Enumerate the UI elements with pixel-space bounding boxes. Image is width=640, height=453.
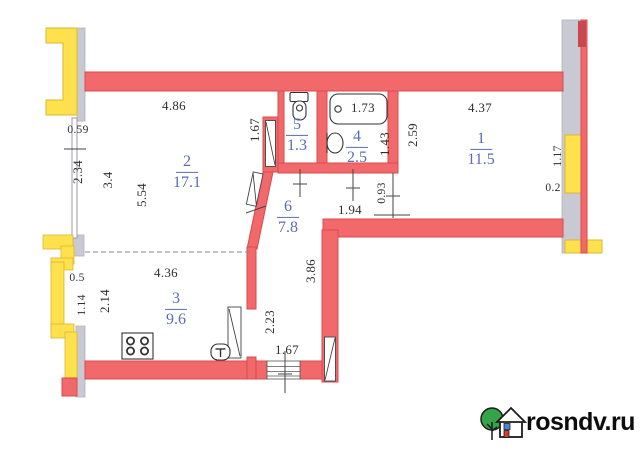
room-number: 5 <box>286 116 308 136</box>
dim-right-wall-thickness: 0.2 <box>545 182 560 194</box>
wall-kitchen-right-upper <box>247 247 256 309</box>
room-area: 1.3 <box>286 136 308 155</box>
kitchen-sink-icon <box>211 344 230 360</box>
dim-kitchen-width: 4.36 <box>154 265 178 281</box>
floor-plan-canvas <box>0 0 640 453</box>
toilet-door <box>266 121 276 167</box>
room-label-3: 3 9.6 <box>165 290 187 328</box>
dim-kitchen-left-offset: 0.5 <box>69 272 84 284</box>
wall-kitchen-right-lower <box>247 357 256 379</box>
dim-room2-height-b: 5.54 <box>134 183 150 207</box>
wall-kitchen-bottom <box>85 361 267 379</box>
dim-room2-height-a: 3.4 <box>100 171 116 188</box>
dim-left-upper-height: 2.34 <box>70 160 86 184</box>
top-left-balcony-wall <box>77 28 85 121</box>
room-label-1: 1 11.5 <box>467 130 494 168</box>
dim-top-right-width: 4.37 <box>468 100 492 116</box>
dim-room1-left-height: 2.59 <box>405 123 421 147</box>
room-area: 9.6 <box>165 310 187 329</box>
wall-right-top-dash <box>578 21 586 47</box>
room-label-4: 4 2.5 <box>346 128 368 166</box>
dim-hall-width: 1.94 <box>338 202 362 218</box>
room-label-2: 2 17.1 <box>173 153 201 191</box>
entry-door <box>325 337 336 381</box>
room-number: 6 <box>277 198 299 218</box>
dim-kitchen-left-height: 2.14 <box>97 289 113 313</box>
dim-kitchen-window-a: 1.14 <box>76 294 88 315</box>
dim-bathtub-length: 1.73 <box>351 100 375 116</box>
wall-bath-bottom <box>278 163 398 173</box>
dim-bath-height: 1.43 <box>377 132 393 156</box>
watermark-site: rosndv.ru <box>526 408 635 437</box>
dim-top-left-width: 4.86 <box>162 98 186 114</box>
wall-top <box>85 72 563 91</box>
top-left-balcony-window <box>46 28 77 115</box>
room-label-5: 5 1.3 <box>286 116 308 154</box>
dim-left-upper-offset: 0.59 <box>67 124 88 136</box>
wall-toilet-bath <box>317 91 327 173</box>
wall-entry-right <box>300 361 322 379</box>
wall-toilet-left <box>278 91 284 173</box>
room-label-6: 6 7.8 <box>277 198 299 236</box>
room-number: 1 <box>470 130 492 150</box>
dim-kitchen-door-height: 2.23 <box>262 310 278 334</box>
dim-hall-opening: 0.93 <box>376 182 388 203</box>
right-window <box>565 135 582 193</box>
dim-entry-width: 1.67 <box>275 342 299 358</box>
room-area: 17.1 <box>173 173 201 192</box>
bath-sink-icon <box>327 133 343 153</box>
wall-right-edge <box>581 20 587 253</box>
room-number: 2 <box>176 153 198 173</box>
floor-plan: 4.86 4.37 0.59 2.34 3.4 5.54 1.67 1.73 1… <box>0 0 640 453</box>
room-area: 7.8 <box>277 218 299 237</box>
room-area: 2.5 <box>346 148 368 167</box>
wall-room1-bottom <box>323 219 563 237</box>
entry-threshold <box>267 361 300 379</box>
dim-hall-passage-height: 1.67 <box>247 118 263 142</box>
wall-left-bottom-cap <box>62 378 77 396</box>
dim-hall-height: 3.86 <box>303 259 319 283</box>
stove-icon <box>122 333 153 359</box>
dim-right-window-height: 1.17 <box>552 145 564 166</box>
watermark: rosndv.ru <box>478 396 640 448</box>
left-balcony-window <box>43 235 77 380</box>
room-number: 3 <box>165 290 187 310</box>
room-area: 11.5 <box>467 150 494 169</box>
room-number: 4 <box>346 128 368 148</box>
